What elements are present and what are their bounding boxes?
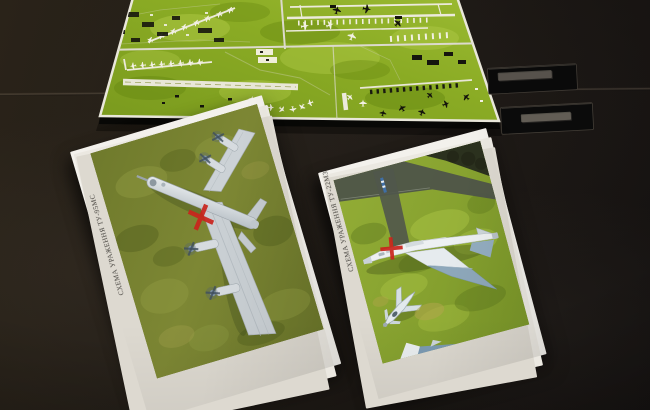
memorial-plaque-1: [487, 64, 577, 95]
memorial-plaque-2: [500, 103, 593, 135]
runway-strip: [344, 93, 346, 110]
photo-scene: СХЕМА УРАЖЕННЯ ТУ-95МС: [0, 0, 650, 410]
